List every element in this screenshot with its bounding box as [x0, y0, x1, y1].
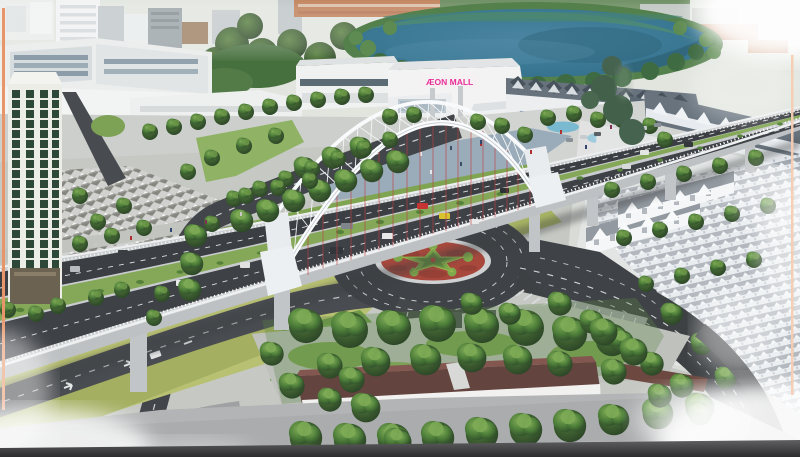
svg-text:ÆON MALL: ÆON MALL	[426, 77, 473, 87]
